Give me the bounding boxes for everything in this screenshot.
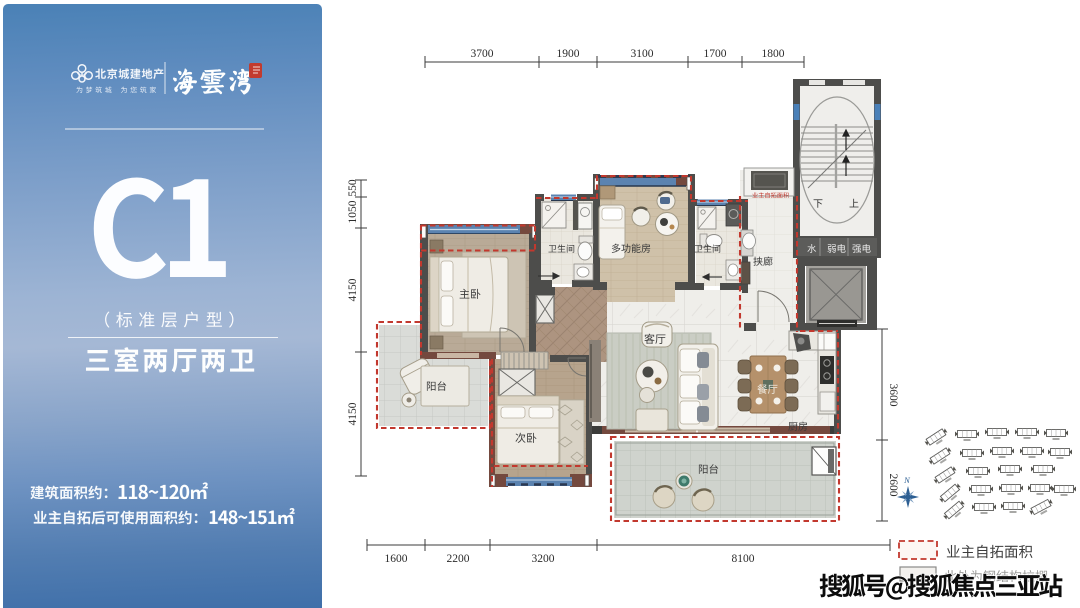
svg-text:3600: 3600: [887, 384, 899, 407]
svg-text:3700: 3700: [471, 48, 494, 60]
svg-text:2600: 2600: [887, 474, 899, 497]
svg-text:8100: 8100: [732, 553, 755, 565]
svg-text:4150: 4150: [347, 402, 359, 425]
svg-text:1050: 1050: [347, 200, 359, 223]
svg-text:3200: 3200: [532, 553, 555, 565]
svg-text:550: 550: [347, 179, 359, 197]
svg-text:4150: 4150: [347, 278, 359, 301]
svg-text:3100: 3100: [631, 48, 654, 60]
svg-text:2200: 2200: [447, 553, 470, 565]
svg-text:1600: 1600: [385, 553, 408, 565]
svg-text:1900: 1900: [557, 48, 580, 60]
svg-text:N: N: [903, 475, 911, 485]
svg-text:1700: 1700: [704, 48, 727, 60]
svg-text:1800: 1800: [762, 48, 785, 60]
